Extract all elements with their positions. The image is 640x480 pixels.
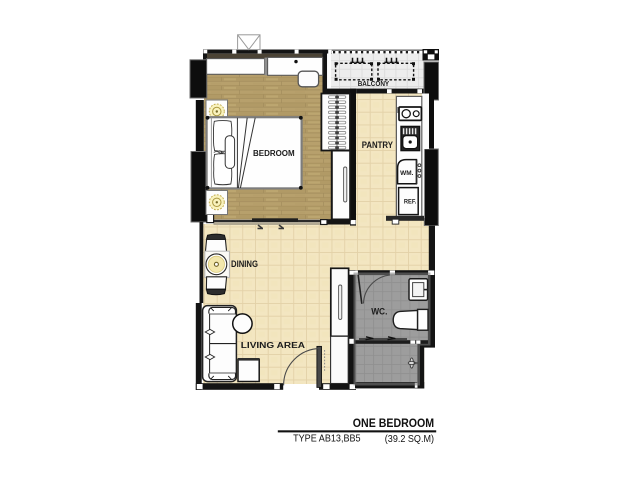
svg-text:WM.: WM. <box>400 170 414 177</box>
svg-text:BALCONY: BALCONY <box>358 79 390 88</box>
svg-text:WC.: WC. <box>371 306 387 317</box>
svg-text:DINING: DINING <box>231 259 258 269</box>
svg-text:PANTRY: PANTRY <box>362 140 393 150</box>
svg-text:LIVING AREA: LIVING AREA <box>241 340 306 350</box>
svg-text:REF.: REF. <box>404 199 417 206</box>
svg-text:TYPE AB13,BB5: TYPE AB13,BB5 <box>293 434 361 445</box>
svg-text:ONE BEDROOM: ONE BEDROOM <box>353 417 434 430</box>
svg-text:BEDROOM: BEDROOM <box>253 148 295 158</box>
svg-text:(39.2 SQ.M): (39.2 SQ.M) <box>385 434 434 445</box>
